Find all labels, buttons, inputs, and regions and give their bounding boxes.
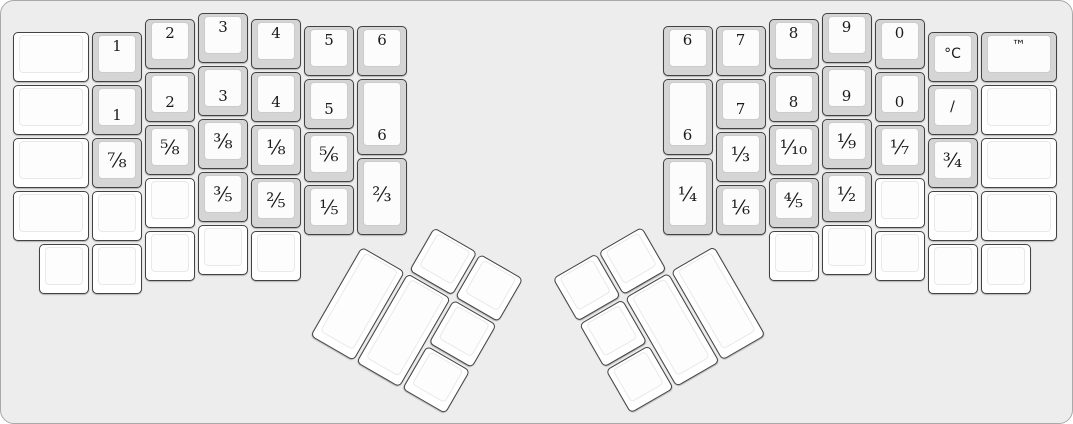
keycap-top — [987, 194, 1052, 232]
right-key-1-4[interactable]: ¼ — [663, 158, 713, 235]
right-key-blank[interactable] — [928, 244, 978, 294]
keycap-top: 4 — [257, 75, 295, 113]
keycap-top — [987, 247, 1025, 285]
keycap-top: 4 — [257, 22, 295, 60]
key-legend: ¼ — [670, 184, 706, 204]
left-key-blank[interactable] — [92, 244, 142, 294]
keycap-top — [45, 247, 83, 285]
key-legend: 0 — [882, 26, 918, 41]
right-key-9[interactable]: 9 — [822, 66, 872, 116]
keycap-top — [934, 247, 972, 285]
keycap-top: °C — [934, 35, 972, 73]
key-legend: 3 — [205, 20, 241, 35]
keycap-top: ⅖ — [257, 181, 295, 219]
right-key-7[interactable]: 7 — [716, 79, 766, 129]
key-legend: ™ — [988, 39, 1051, 53]
right-key-slash[interactable]: / — [928, 85, 978, 135]
right-key-blank[interactable] — [928, 191, 978, 241]
key-legend: ⅚ — [311, 144, 347, 164]
keycap-top: ⅕ — [310, 188, 348, 226]
keycap-top — [98, 194, 136, 232]
keycap-top: ½ — [828, 175, 866, 213]
right-key-blank[interactable] — [875, 231, 925, 281]
keycap-top — [19, 141, 84, 179]
keycap-top — [19, 194, 84, 232]
key-legend: 6 — [670, 33, 706, 48]
right-key-6[interactable]: 6 — [663, 26, 713, 76]
keycap-top — [559, 259, 611, 311]
keycap-top: ⅛ — [257, 128, 295, 166]
keycap-top: 3 — [204, 69, 242, 107]
left-key-4[interactable]: 4 — [251, 72, 301, 122]
keycap-top: ⅙ — [722, 188, 760, 226]
left-key-7-8[interactable]: ⅞ — [92, 138, 142, 188]
left-key-2-5[interactable]: ⅖ — [251, 178, 301, 228]
left-key-3-5[interactable]: ⅗ — [198, 172, 248, 222]
keycap-top: ⅘ — [775, 181, 813, 219]
key-legend: 7 — [723, 102, 759, 117]
key-legend: ⅖ — [258, 190, 294, 210]
key-legend: ⅑ — [829, 131, 865, 151]
key-legend: 8 — [776, 26, 812, 41]
keycap-top: / — [934, 88, 972, 126]
keycap-top: 8 — [775, 75, 813, 113]
left-key-1[interactable]: 1 — [92, 85, 142, 135]
keycap-top: ⅒ — [775, 128, 813, 166]
right-key-6[interactable]: 6 — [663, 79, 713, 156]
key-legend: 0 — [882, 95, 918, 110]
left-key-blank[interactable] — [13, 32, 90, 82]
left-key-6[interactable]: 6 — [357, 26, 407, 76]
right-key-1-3[interactable]: ⅓ — [716, 132, 766, 182]
keycap-top: ™ — [987, 35, 1052, 73]
right-key-blank[interactable] — [981, 244, 1031, 294]
right-key-blank[interactable] — [981, 85, 1058, 135]
keycap-top: 9 — [828, 69, 866, 107]
key-legend: ⅗ — [205, 184, 241, 204]
right-key-7[interactable]: 7 — [716, 26, 766, 76]
keycap-top — [881, 181, 919, 219]
left-key-blank[interactable] — [13, 85, 90, 135]
left-key-5[interactable]: 5 — [304, 79, 354, 129]
right-key-1-6[interactable]: ⅙ — [716, 185, 766, 235]
key-legend: ⅙ — [723, 197, 759, 217]
keycap-top — [464, 259, 516, 311]
keycap-top: 5 — [310, 29, 348, 67]
left-key-blank[interactable] — [145, 231, 195, 281]
keycap-top: 6 — [363, 82, 401, 147]
keycap-top: 0 — [881, 75, 919, 113]
keycap-top: 7 — [722, 82, 760, 120]
left-key-blank[interactable] — [39, 244, 89, 294]
keycap-top — [612, 351, 664, 403]
key-legend: 2 — [152, 95, 188, 110]
right-key-8[interactable]: 8 — [769, 72, 819, 122]
left-key-4[interactable]: 4 — [251, 19, 301, 69]
left-key-5[interactable]: 5 — [304, 26, 354, 76]
keycap-top: ⅜ — [204, 122, 242, 160]
right-key-0[interactable]: 0 — [875, 72, 925, 122]
right-key-1-7[interactable]: ⅐ — [875, 125, 925, 175]
keycap-top: ⅐ — [881, 128, 919, 166]
key-legend: 4 — [258, 26, 294, 41]
key-legend: 3 — [205, 89, 241, 104]
key-legend: ⅐ — [882, 137, 918, 157]
right-key-4-5[interactable]: ⅘ — [769, 178, 819, 228]
keycap-top — [987, 141, 1052, 179]
keycap-top: ⅝ — [151, 128, 189, 166]
key-legend: ⅜ — [205, 131, 241, 151]
left-key-blank[interactable] — [13, 191, 90, 241]
keycap-top — [585, 305, 637, 357]
left-key-1-8[interactable]: ⅛ — [251, 125, 301, 175]
right-key-1-2[interactable]: ½ — [822, 172, 872, 222]
left-key-3[interactable]: 3 — [198, 66, 248, 116]
key-legend: 2 — [152, 26, 188, 41]
left-key-blank[interactable] — [251, 231, 301, 281]
right-key-blank[interactable] — [769, 231, 819, 281]
key-legend: ⅒ — [776, 137, 812, 157]
keycap-top — [98, 247, 136, 285]
right-key-degree-c[interactable]: °C — [928, 32, 978, 82]
keycap-top: 1 — [98, 35, 136, 73]
keycap-top: 8 — [775, 22, 813, 60]
keycap-top: 2 — [151, 22, 189, 60]
keycap-top: 3 — [204, 16, 242, 54]
keycap-top: 6 — [669, 29, 707, 67]
left-key-1[interactable]: 1 — [92, 32, 142, 82]
keycap-top: ⅓ — [722, 135, 760, 173]
keycap-top: 1 — [98, 88, 136, 126]
keycap-top: ¼ — [669, 161, 707, 226]
key-legend: 4 — [258, 95, 294, 110]
key-legend: ½ — [829, 184, 865, 204]
left-key-blank[interactable] — [198, 225, 248, 275]
keycap-top — [934, 194, 972, 232]
left-key-6[interactable]: 6 — [357, 79, 407, 156]
key-legend: ⅝ — [152, 137, 188, 157]
keycap-top — [987, 88, 1052, 126]
right-key-1-9[interactable]: ⅑ — [822, 119, 872, 169]
key-legend: °C — [935, 47, 971, 61]
keycap-top: ⅗ — [204, 175, 242, 213]
left-key-blank[interactable] — [13, 138, 90, 188]
keycap-top: ⅚ — [310, 135, 348, 173]
left-key-3[interactable]: 3 — [198, 13, 248, 63]
left-key-1-5[interactable]: ⅕ — [304, 185, 354, 235]
keycap-top: 5 — [310, 82, 348, 120]
keycap-top: ⅔ — [363, 161, 401, 226]
keycap-top: 2 — [151, 75, 189, 113]
left-key-5-6[interactable]: ⅚ — [304, 132, 354, 182]
right-key-blank[interactable] — [981, 191, 1058, 241]
key-legend: ⅛ — [258, 137, 294, 157]
keycap-top — [881, 234, 919, 272]
key-legend: ⅘ — [776, 190, 812, 210]
right-key-trademark[interactable]: ™ — [981, 32, 1058, 82]
key-legend: 6 — [670, 128, 706, 143]
keycap-top: 7 — [722, 29, 760, 67]
right-key-blank[interactable] — [981, 138, 1058, 188]
key-legend: 5 — [311, 102, 347, 117]
keycap-top: ¾ — [934, 141, 972, 179]
keycap-top: 9 — [828, 16, 866, 54]
left-key-3-8[interactable]: ⅜ — [198, 119, 248, 169]
keycap-top — [604, 232, 656, 284]
keycap-top — [19, 88, 84, 126]
keycap-top — [204, 228, 242, 266]
keycap-top — [257, 234, 295, 272]
key-legend: 5 — [311, 33, 347, 48]
left-key-2[interactable]: 2 — [145, 19, 195, 69]
key-legend: 6 — [364, 128, 400, 143]
key-legend: 1 — [99, 39, 135, 54]
right-key-1-10[interactable]: ⅒ — [769, 125, 819, 175]
keycap-top: 6 — [669, 82, 707, 147]
right-key-blank[interactable] — [822, 225, 872, 275]
keycap-top — [418, 232, 470, 284]
key-legend: ⅔ — [364, 184, 400, 204]
left-key-blank[interactable] — [92, 191, 142, 241]
right-key-9[interactable]: 9 — [822, 13, 872, 63]
keycap-top: 6 — [363, 29, 401, 67]
right-key-3-4[interactable]: ¾ — [928, 138, 978, 188]
keycap-top — [19, 35, 84, 73]
key-legend: ⅞ — [99, 150, 135, 170]
key-legend: ¾ — [935, 150, 971, 170]
left-key-blank[interactable] — [145, 178, 195, 228]
keycap-top: ⅞ — [98, 141, 136, 179]
keyboard-board: 11⅞22⅝33⅜⅗44⅛⅖55⅚⅕66⅔66¼77⅓⅙88⅒⅘99⅑½00⅐°… — [0, 0, 1073, 424]
left-key-2-3[interactable]: ⅔ — [357, 158, 407, 235]
key-legend: ⅓ — [723, 144, 759, 164]
key-legend: / — [935, 100, 971, 114]
key-legend: 6 — [364, 33, 400, 48]
key-legend: 9 — [829, 89, 865, 104]
keycap-top: 0 — [881, 22, 919, 60]
right-key-blank[interactable] — [875, 178, 925, 228]
key-legend: 7 — [723, 33, 759, 48]
key-legend: 9 — [829, 20, 865, 35]
key-legend: 1 — [99, 108, 135, 123]
keycap-top: ⅑ — [828, 122, 866, 160]
right-key-0[interactable]: 0 — [875, 19, 925, 69]
keycap-top — [775, 234, 813, 272]
keycap-top — [151, 234, 189, 272]
right-key-8[interactable]: 8 — [769, 19, 819, 69]
left-key-5-8[interactable]: ⅝ — [145, 125, 195, 175]
keycap-top — [151, 181, 189, 219]
left-key-2[interactable]: 2 — [145, 72, 195, 122]
key-legend: ⅕ — [311, 197, 347, 217]
keycap-top — [828, 228, 866, 266]
key-legend: 8 — [776, 95, 812, 110]
